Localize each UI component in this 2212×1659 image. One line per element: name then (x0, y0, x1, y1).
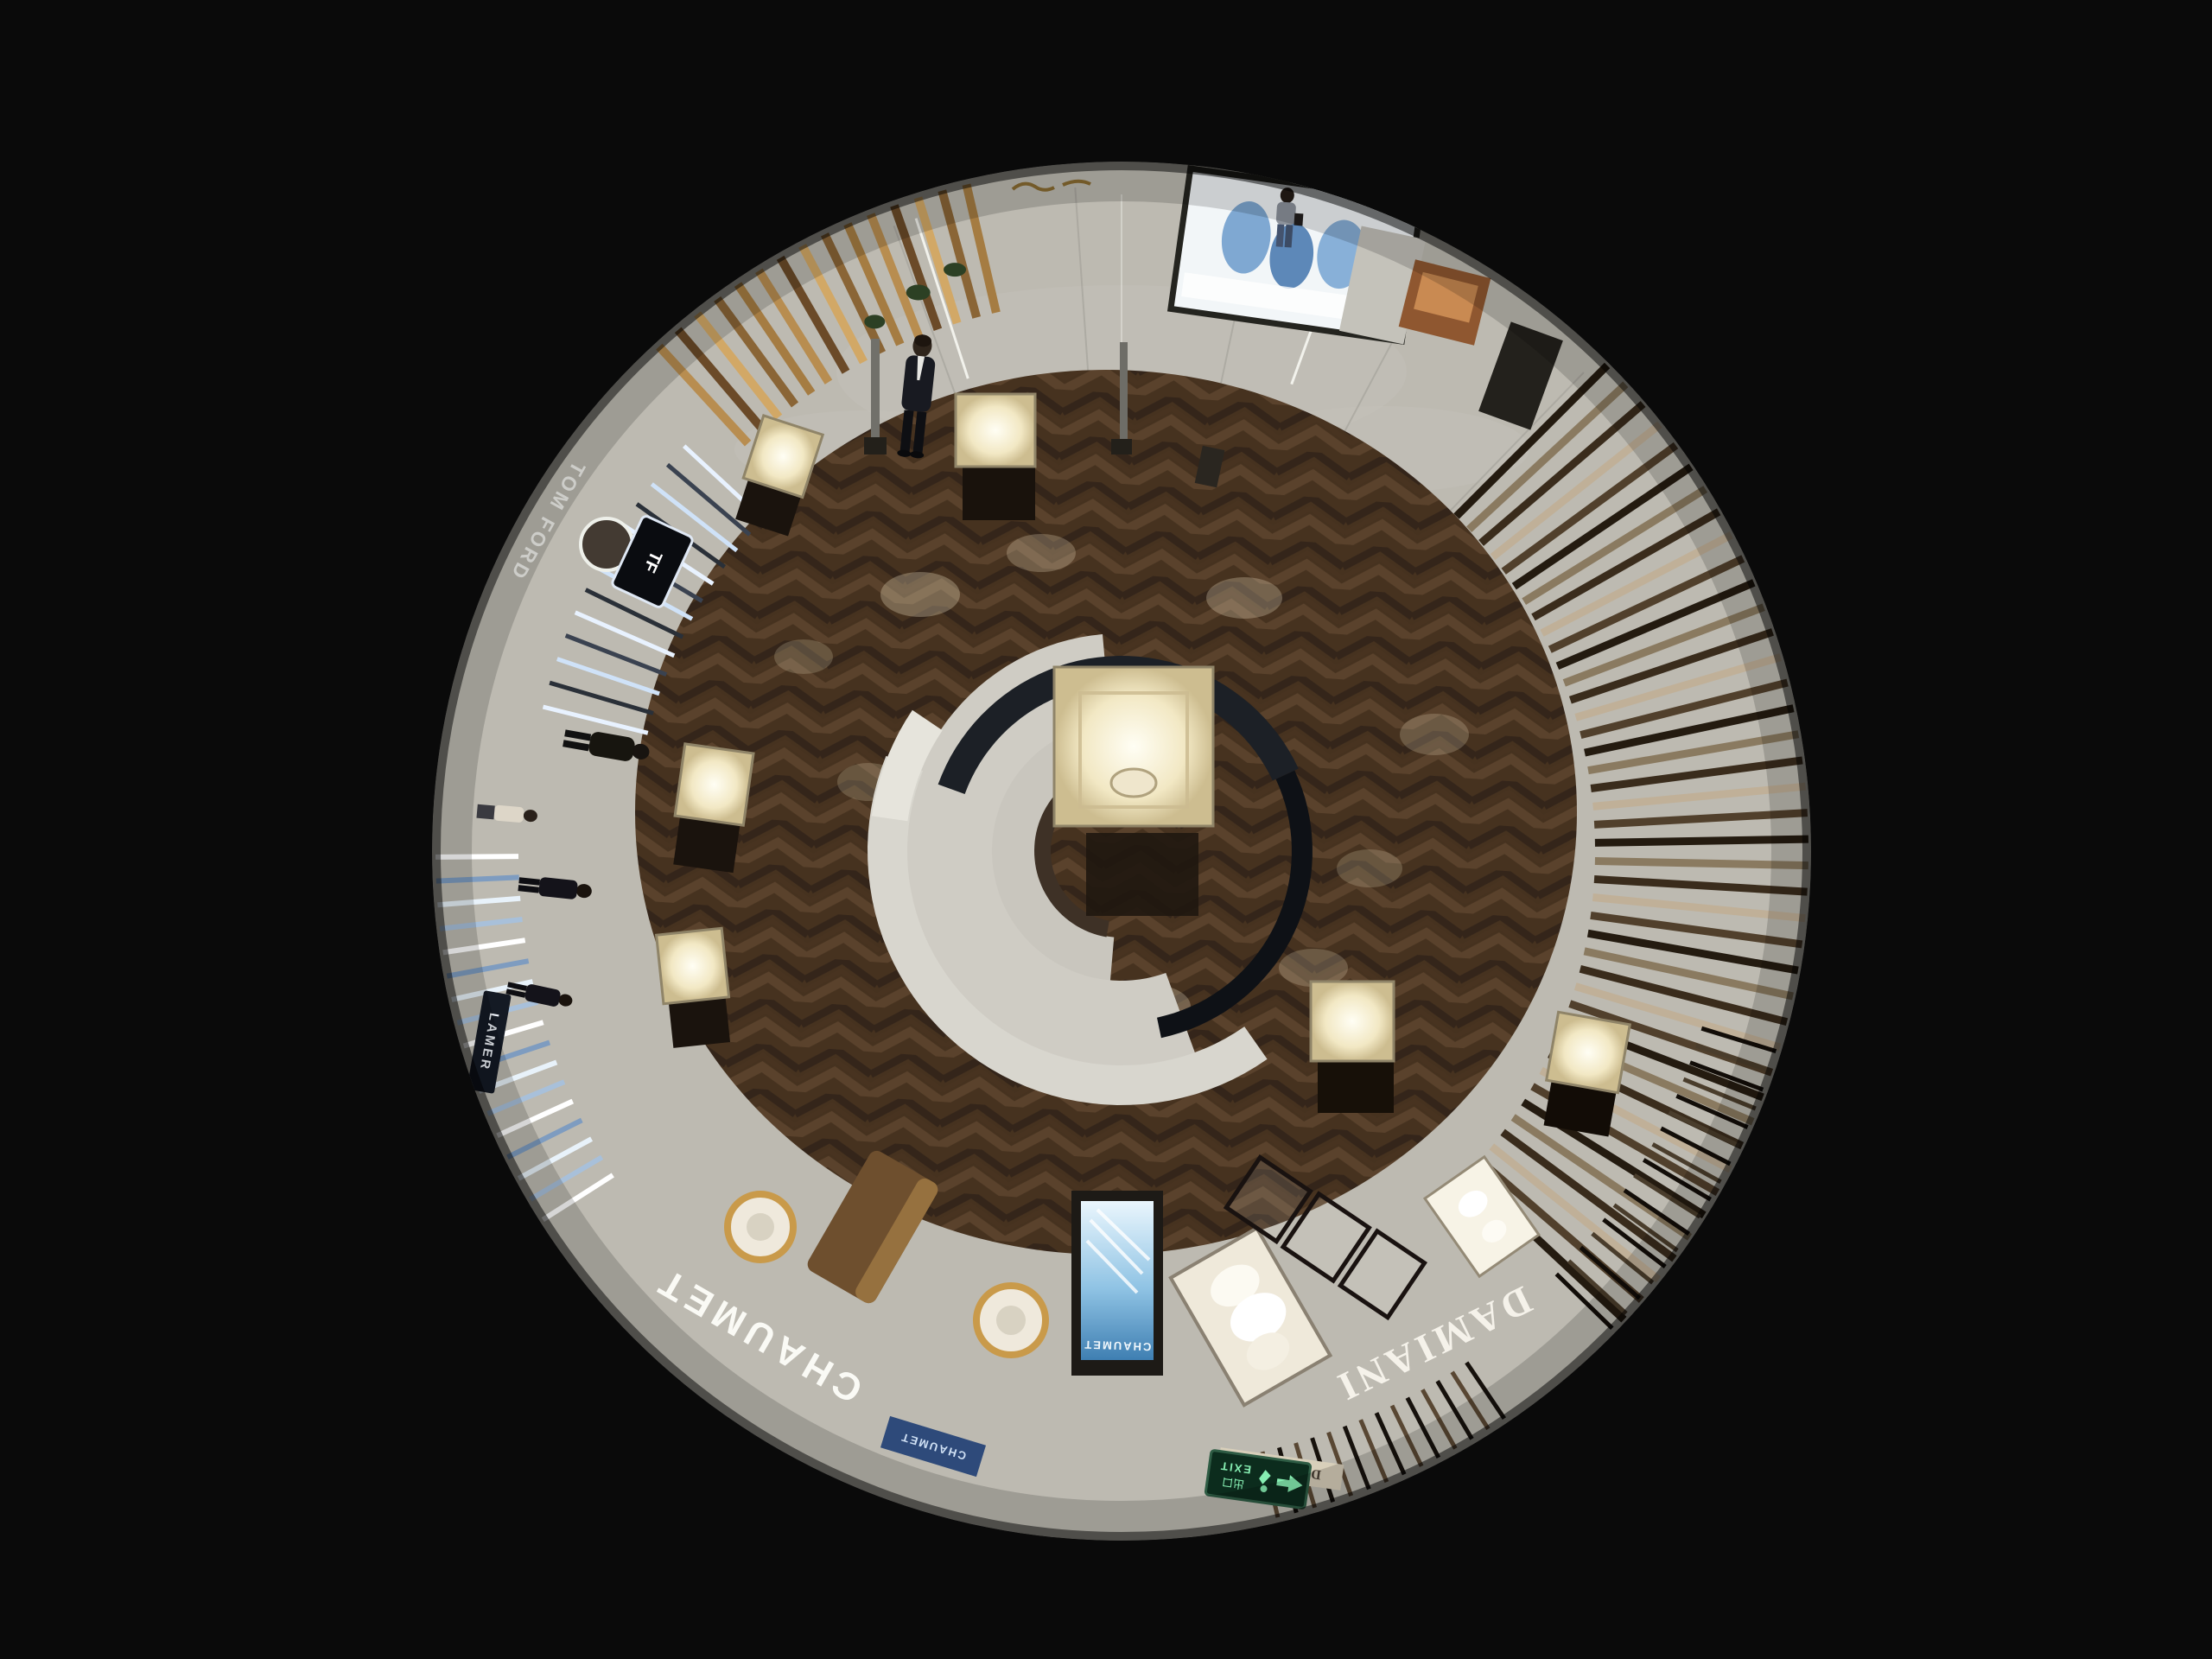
fisheye-video-feed[interactable]: TOM FORD TF LAMER (0, 0, 2212, 1659)
decor-shape (944, 263, 966, 276)
display-case (1311, 982, 1394, 1113)
security-gate-sensor (864, 437, 887, 454)
security-gate-sensor (1111, 439, 1132, 454)
chaumet-digital-screen: CHAUMET (1071, 1191, 1163, 1376)
display-case (956, 394, 1035, 520)
gold-stool (728, 1194, 793, 1260)
sign-chaumet-screen: CHAUMET (1083, 1338, 1151, 1354)
decor-shape (1206, 577, 1282, 619)
entrance-glass-post (871, 339, 880, 449)
decor-shape (774, 639, 833, 674)
decor-shape (880, 572, 960, 617)
gold-stool (976, 1286, 1046, 1355)
decor-shape (864, 315, 885, 328)
cctv-frame: 09-29-2025 Mon 16:02:48 Camera 01 (0, 0, 2212, 1659)
decor-shape (1400, 714, 1469, 755)
decor-shape (1007, 534, 1076, 572)
decor-shape (1337, 849, 1402, 887)
decor-shape (906, 284, 931, 300)
entrance-glass-post (1120, 342, 1128, 449)
